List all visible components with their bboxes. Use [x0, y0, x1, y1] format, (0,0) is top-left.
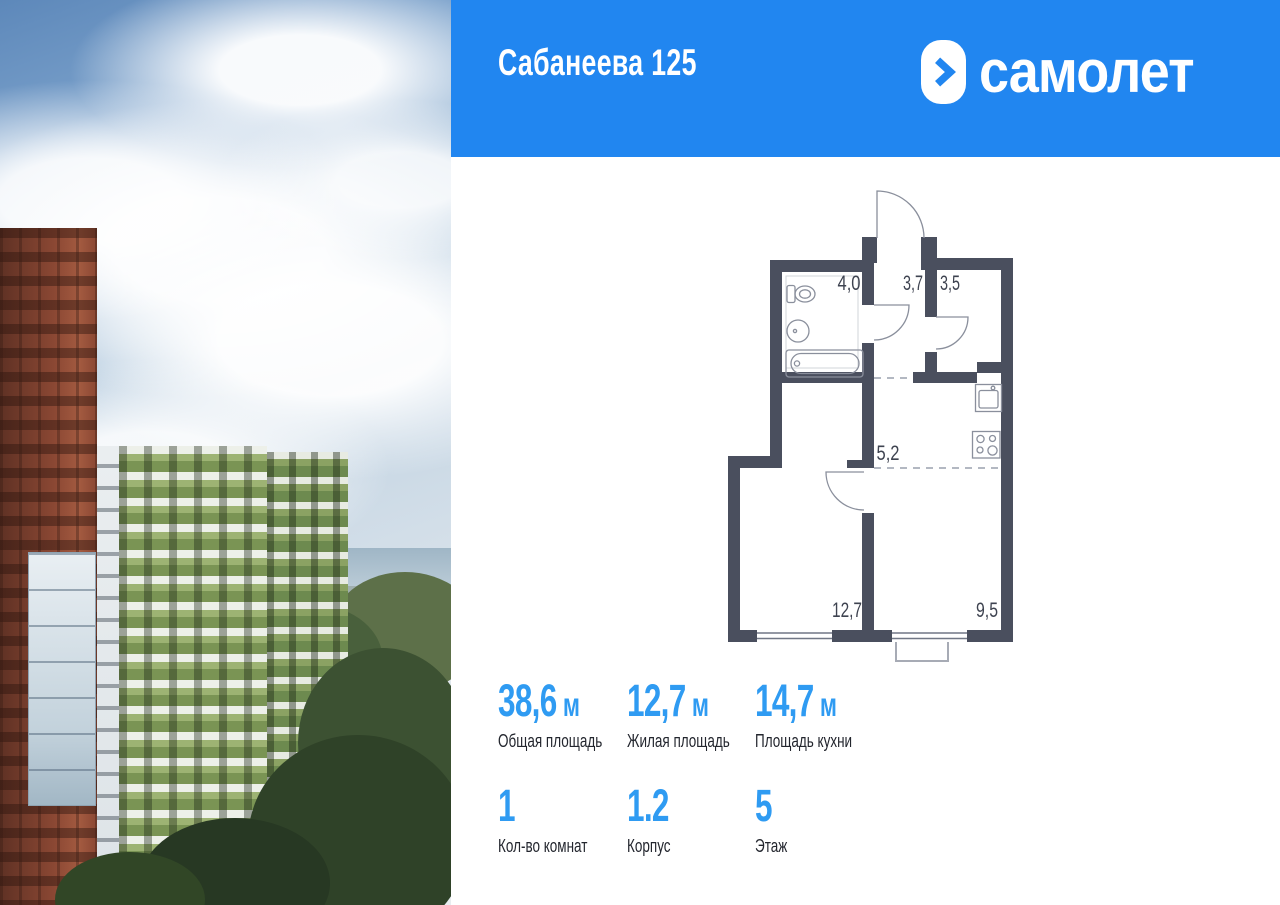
kitchen-sink-icon: [979, 391, 998, 409]
stat-building-number: 1.2 Корпус: [627, 783, 687, 857]
kitchen-sink-icon: [991, 386, 995, 390]
stat-label: Жилая площадь: [627, 731, 730, 752]
bathroom-fixtures: [786, 286, 863, 378]
stat-rooms-count: 1 Кол-во комнат: [498, 783, 617, 857]
glass-balconies: [28, 552, 96, 806]
stat-floor-number: 5 Этаж: [755, 783, 798, 857]
header-bar: Сабанеева 125 самолет: [451, 0, 1280, 157]
unit-meters: м: [820, 686, 836, 723]
stove-icon: [977, 447, 983, 453]
room-label-kitchen: 9,5: [976, 599, 998, 622]
white-stair-column: [97, 446, 119, 905]
stat-value: 14,7м: [755, 678, 846, 723]
balcony: [896, 642, 948, 661]
stat-value: 38,6м: [498, 678, 595, 723]
stat-total-area: 38,6м Общая площадь: [498, 678, 637, 752]
stove-icon: [990, 436, 996, 442]
building-photo: [0, 0, 451, 905]
samolet-logo: самолет: [921, 40, 1218, 104]
room-label-bathroom: 4,0: [838, 272, 861, 295]
stove-icon: [988, 446, 997, 455]
kitchen-fixtures: [973, 385, 1002, 459]
walls: [728, 237, 1013, 642]
page-title: Сабанеева 125: [498, 42, 697, 84]
stat-label: Площадь кухни: [755, 731, 852, 752]
toilet-icon: [800, 290, 811, 298]
stat-living-area: 12,7м Жилая площадь: [627, 678, 764, 752]
stove-icon: [977, 435, 984, 442]
listing-card: Сабанеева 125 самолет: [0, 0, 1280, 905]
sink-icon: [793, 329, 796, 332]
floor-plan: 4,0 3,7 3,5 5,2 12,7 9,5: [715, 180, 1025, 675]
stat-label: Общая площадь: [498, 731, 602, 752]
toilet-icon: [795, 286, 815, 302]
unit-meters: м: [692, 686, 708, 723]
stat-value: 1.2: [627, 783, 669, 828]
unit-meters: м: [563, 686, 579, 723]
stat-label: Корпус: [627, 836, 672, 857]
room-label-hallway: 3,7: [903, 272, 923, 295]
bathtub-icon: [794, 361, 799, 366]
stat-label: Этаж: [755, 836, 787, 857]
toilet-icon: [787, 286, 795, 303]
stat-kitchen-area: 14,7м Площадь кухни: [755, 678, 884, 752]
samolet-logo-text: самолет: [979, 40, 1194, 104]
samolet-logo-icon: [921, 40, 966, 104]
room-label-corridor: 5,2: [877, 442, 900, 465]
room-label-living-room: 12,7: [832, 599, 862, 622]
room-label-pantry: 3,5: [940, 272, 960, 295]
sink-icon: [787, 320, 809, 342]
stat-value: 1: [498, 783, 581, 828]
stat-label: Кол-во комнат: [498, 836, 587, 857]
stat-value: 5: [755, 783, 785, 828]
bathtub-icon: [791, 354, 859, 374]
stat-value: 12,7м: [627, 678, 723, 723]
